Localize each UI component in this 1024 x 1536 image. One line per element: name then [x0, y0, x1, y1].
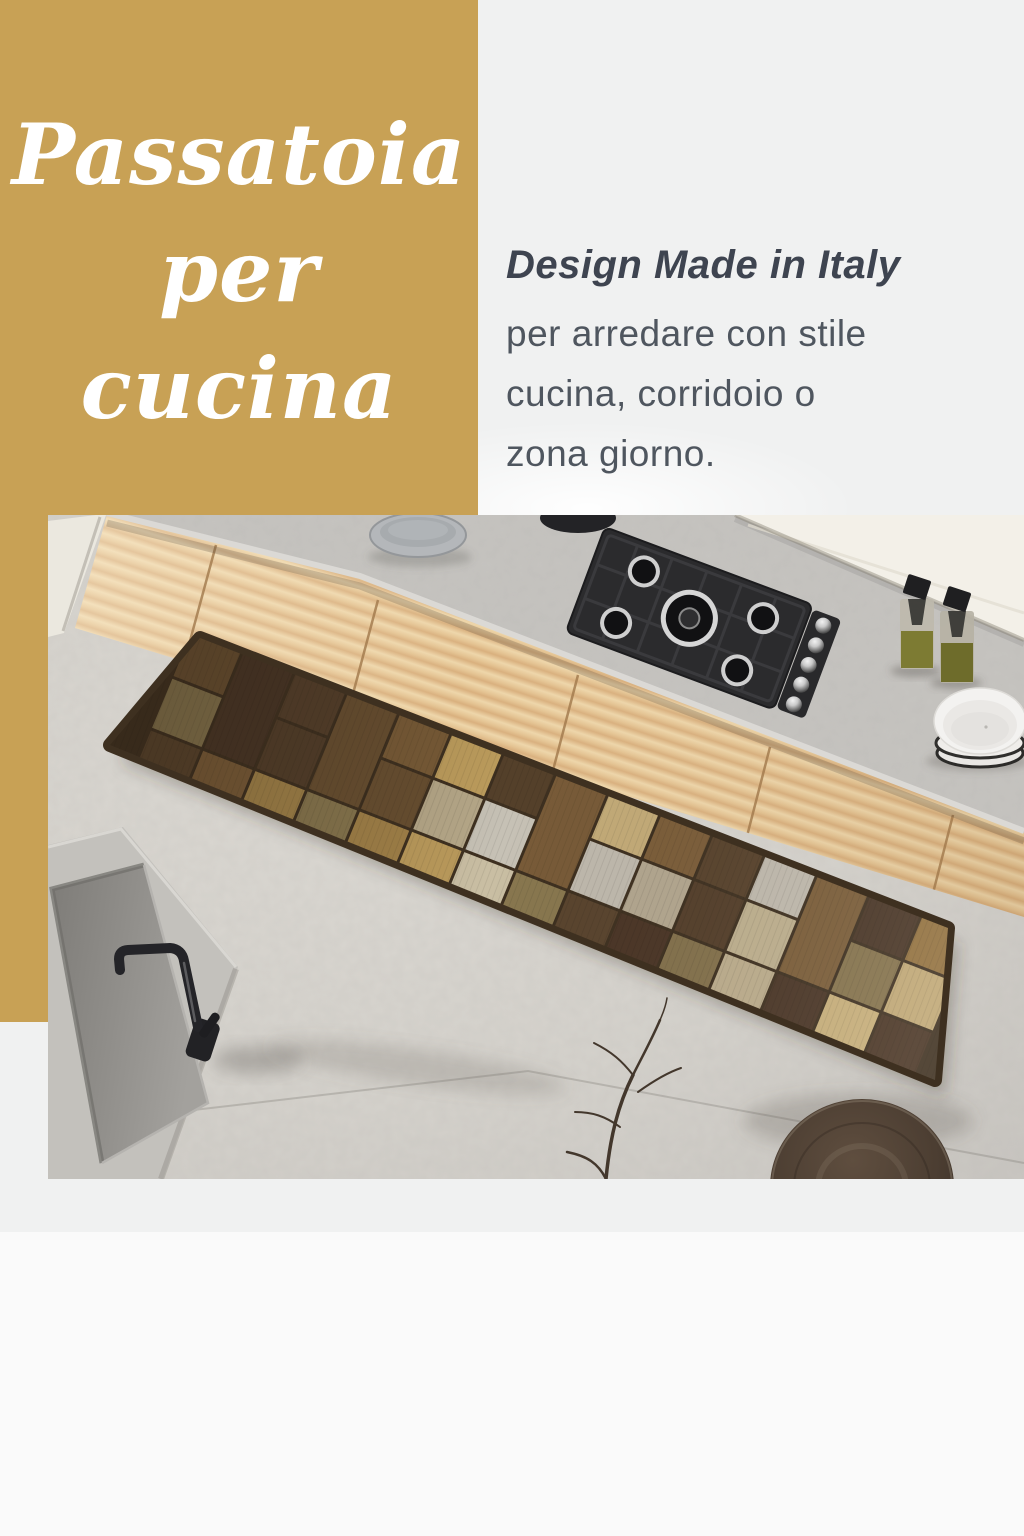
tagline-line: per arredare con stile	[506, 304, 976, 364]
oil-bottle	[900, 574, 934, 669]
page: Passatoia per cucina Design Made in Ital…	[0, 0, 1024, 1536]
tagline-heading: Design Made in Italy	[506, 243, 976, 288]
stone-bowl	[368, 515, 472, 567]
page-title: Passatoia per cucina	[0, 96, 478, 447]
title-line-1: Passatoia	[0, 96, 478, 213]
tagline-line: cucina, corridoio o	[506, 364, 976, 424]
tagline: Design Made in Italy per arredare con st…	[506, 243, 976, 484]
product-photo	[48, 515, 1024, 1179]
title-line-2: per cucina	[0, 213, 478, 447]
tagline-line: zona giorno.	[506, 424, 976, 484]
kitchen-scene-svg	[48, 515, 1024, 1179]
oil-bottle	[940, 586, 974, 683]
round-table	[743, 1093, 973, 1179]
